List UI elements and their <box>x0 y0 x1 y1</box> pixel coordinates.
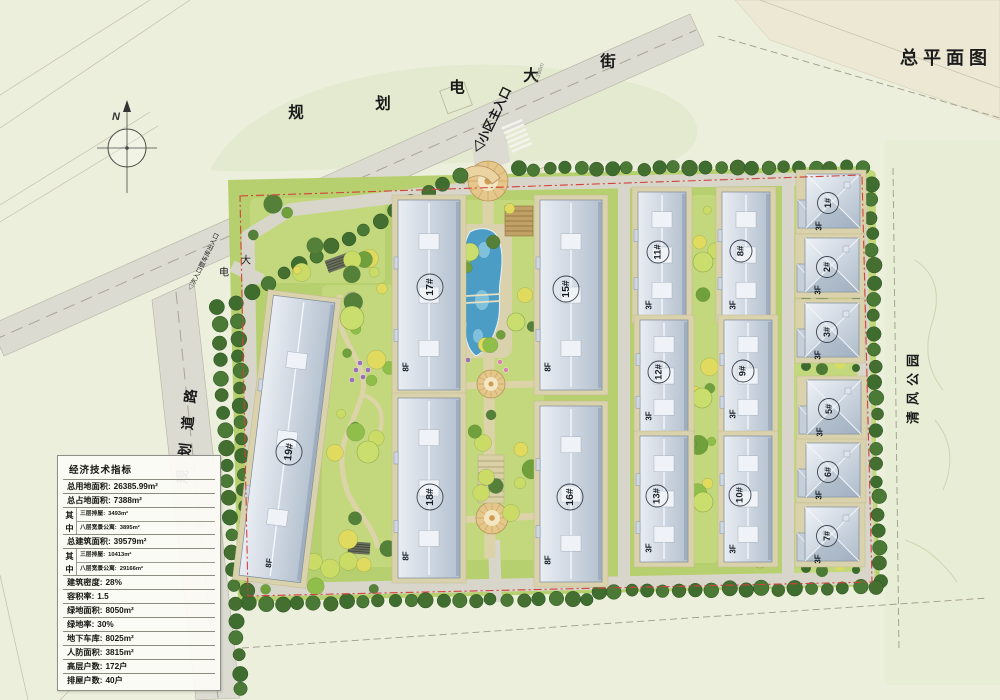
building-number-12: 12# <box>654 363 665 380</box>
inner-street-char: 电 <box>219 266 229 279</box>
econ-row: 总占地面积:7388m² <box>63 493 215 507</box>
econ-row: 容积率:1.5 <box>63 589 215 603</box>
building-number-16: 16# <box>564 488 576 506</box>
park-area <box>885 140 1000 685</box>
econ-group-key: 其中 <box>63 508 76 534</box>
econ-row-value: 3815m² <box>105 648 133 657</box>
econ-row: 建筑密度:28% <box>63 575 215 589</box>
econ-row-label: 地下车库: <box>67 634 102 643</box>
econ-row: 地下车库:8025m² <box>63 631 215 645</box>
building-number-11: 11# <box>653 244 664 260</box>
building-number-10: 10# <box>735 486 746 503</box>
accent-canopy <box>357 441 379 463</box>
econ-row: 总建筑面积:39579m² <box>63 534 215 548</box>
building-number-17: 17# <box>424 278 436 296</box>
building-number-5: 5# <box>824 404 834 414</box>
econ-subrow: 三层排屋:10413m² <box>77 549 215 562</box>
floor-tag-17: 8F <box>402 362 411 371</box>
econ-row: 人防面积:3815m² <box>63 645 215 659</box>
street-name-char: 电 <box>449 78 465 97</box>
econ-row-label: 总用地面积: <box>67 482 111 491</box>
accent-canopy <box>692 388 712 408</box>
building-number-8: 8# <box>736 245 747 256</box>
accent-canopy <box>693 492 713 512</box>
accent-canopy <box>693 252 713 272</box>
econ-row-label: 总建筑面积: <box>67 537 111 546</box>
floor-tag-11: 3F <box>645 300 654 309</box>
street-name-char: 规 <box>288 104 304 122</box>
econ-row: 排屋户数:40户 <box>63 673 215 687</box>
econ-row-label: 人防面积: <box>67 648 102 657</box>
econ-row-label: 总占地面积: <box>67 496 111 505</box>
building-number-18: 18# <box>424 488 436 506</box>
street-name-char: 划 <box>375 94 391 113</box>
building-number-1: 1# <box>823 198 833 208</box>
floor-tag-16: 8F <box>544 555 553 564</box>
economic-indicators-title: 经济技术指标 <box>63 460 215 479</box>
econ-row-label: 排屋户数: <box>67 676 102 685</box>
building-number-19: 19# <box>282 442 296 461</box>
econ-subrow: 三层排屋:3493m² <box>77 508 215 521</box>
floor-tag-7: 3F <box>814 554 823 563</box>
central-plaza <box>477 370 505 398</box>
economic-indicators-panel: 经济技术指标 总用地面积:26385.99m²总占地面积:7388m²其中三层排… <box>57 455 221 691</box>
econ-row-value: 172户 <box>105 662 127 671</box>
econ-group-row: 其中三层排屋:3493m²八层宽景公寓:3895m² <box>63 507 215 534</box>
accent-canopy <box>340 306 364 330</box>
floor-tag-5: 3F <box>816 427 825 436</box>
floor-tag-18: 8F <box>402 551 411 560</box>
econ-row-value: 8025m² <box>105 634 133 643</box>
plan-title: 总平面图 <box>900 44 992 70</box>
site-plan-stage: 19#8F17#8F18#8F15#8F16#8F11#3F12#3F13#3F… <box>0 0 1000 700</box>
park-name-label: 清风公园 <box>906 348 921 424</box>
floor-tag-6: 3F <box>815 490 824 499</box>
north-letter: N <box>112 111 121 123</box>
inner-street-char: 大 <box>241 254 251 267</box>
floor-tag-8: 3F <box>729 300 738 309</box>
econ-row-value: 1.5 <box>97 592 108 601</box>
building-number-6: 6# <box>823 467 833 477</box>
floor-tag-2: 3F <box>814 285 823 294</box>
street-name-char: 街 <box>599 52 616 71</box>
econ-row-label: 容积率: <box>67 592 94 601</box>
econ-row-label: 绿地率: <box>67 620 94 629</box>
econ-row: 绿地率:30% <box>63 617 215 631</box>
econ-group-row: 其中三层排屋:10413m²八层宽景公寓:29166m² <box>63 548 215 575</box>
floor-tag-15: 8F <box>544 362 553 371</box>
floor-tag-9: 3F <box>729 409 738 418</box>
econ-row-label: 建筑密度: <box>67 578 102 587</box>
building-number-2: 2# <box>822 262 832 272</box>
econ-row: 总用地面积:26385.99m² <box>63 479 215 493</box>
econ-row-value: 30% <box>97 620 113 629</box>
econ-subrow: 八层宽景公寓:29166m² <box>77 562 215 576</box>
south-plaza <box>476 502 508 534</box>
floor-tag-12: 3F <box>645 411 654 420</box>
building-number-3: 3# <box>822 327 832 337</box>
econ-row-label: 绿地面积: <box>67 606 102 615</box>
building-number-13: 13# <box>652 487 663 504</box>
building-number-9: 9# <box>738 365 749 376</box>
floor-tag-3: 3F <box>814 350 823 359</box>
econ-row: 高层户数:172户 <box>63 659 215 673</box>
econ-row-value: 7388m² <box>114 496 142 505</box>
floor-tag-10: 3F <box>729 544 738 553</box>
econ-subrow: 八层宽景公寓:3895m² <box>77 521 215 535</box>
accent-canopy <box>507 313 525 331</box>
econ-row-value: 39579m² <box>114 537 147 546</box>
econ-row-value: 8050m² <box>105 606 133 615</box>
floor-tag-13: 3F <box>645 543 654 552</box>
floor-tag-1: 3F <box>815 221 824 230</box>
water-highlight <box>475 290 489 310</box>
econ-group-key: 其中 <box>63 549 76 575</box>
econ-row-label: 高层户数: <box>67 662 102 671</box>
building-number-7: 7# <box>822 531 832 541</box>
econ-row-value: 28% <box>105 578 121 587</box>
economic-indicators-rows: 总用地面积:26385.99m²总占地面积:7388m²其中三层排屋:3493m… <box>63 479 215 687</box>
building-number-15: 15# <box>560 280 572 298</box>
econ-row: 绿地面积:8050m² <box>63 603 215 617</box>
floor-tag-19: 8F <box>264 558 274 568</box>
econ-row-value: 40户 <box>105 676 122 685</box>
econ-row-value: 26385.99m² <box>114 482 158 491</box>
